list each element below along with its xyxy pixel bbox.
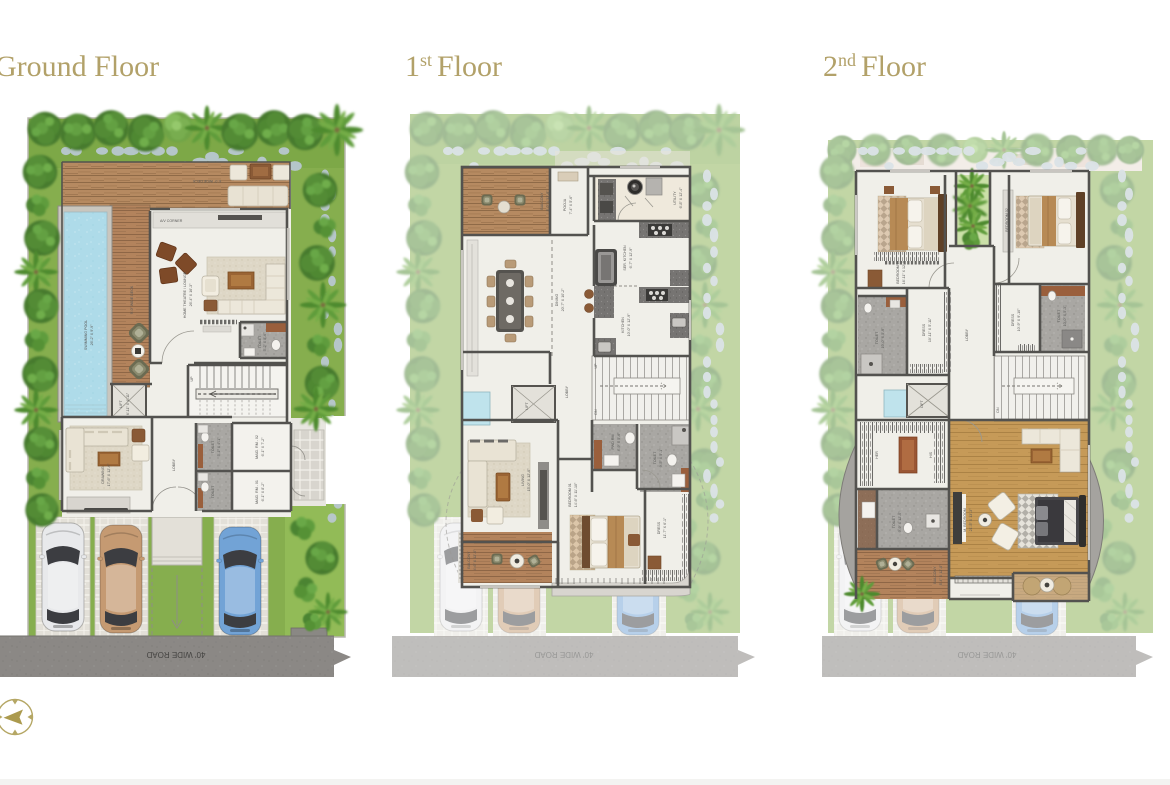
svg-text:BALCONY: BALCONY xyxy=(933,566,937,584)
svg-text:LOBBY: LOBBY xyxy=(565,385,569,398)
svg-text:26'-2" X 9'-9": 26'-2" X 9'-9" xyxy=(90,324,94,345)
svg-text:LIFT: LIFT xyxy=(119,400,123,408)
svg-text:10'-0" X 5'-3": 10'-0" X 5'-3" xyxy=(1063,305,1067,326)
svg-text:TOILET: TOILET xyxy=(211,440,215,453)
svg-text:DRESS: DRESS xyxy=(922,323,926,336)
svg-text:HIS: HIS xyxy=(929,451,933,458)
svg-text:UTILITY: UTILITY xyxy=(673,191,677,205)
svg-text:1stFloor: 1stFloor xyxy=(405,50,502,83)
svg-text:KITCHEN: KITCHEN xyxy=(621,317,625,333)
svg-text:SER. KITCHEN: SER. KITCHEN xyxy=(623,245,627,271)
svg-text:SWIMMING POOL: SWIMMING POOL xyxy=(84,320,88,350)
svg-text:10'-0" X 12'-9": 10'-0" X 12'-9" xyxy=(627,313,631,336)
svg-text:PWD RM: PWD RM xyxy=(611,435,615,450)
svg-text:15'-0" X 12'-0": 15'-0" X 12'-0" xyxy=(527,468,531,491)
svg-text:TOILET: TOILET xyxy=(653,451,657,464)
svg-text:Ground Floor: Ground Floor xyxy=(0,50,159,83)
svg-text:40' WIDE ROAD: 40' WIDE ROAD xyxy=(146,650,205,659)
svg-text:BALCONY: BALCONY xyxy=(540,192,544,210)
svg-text:LIFT: LIFT xyxy=(525,402,529,410)
svg-text:6'-0" WIDE DECK: 6'-0" WIDE DECK xyxy=(192,179,221,183)
svg-text:6'-1" X 7'-2": 6'-1" X 7'-2" xyxy=(261,437,265,456)
svg-text:40' WIDE ROAD: 40' WIDE ROAD xyxy=(957,650,1016,659)
svg-text:10'-11" X 5'-11": 10'-11" X 5'-11" xyxy=(928,317,932,342)
svg-text:HER: HER xyxy=(875,451,879,459)
svg-text:TOILET: TOILET xyxy=(875,331,879,344)
svg-text:A/V CORNER: A/V CORNER xyxy=(160,219,183,223)
svg-text:DN: DN xyxy=(996,407,1000,413)
svg-text:MAID. RM - 02: MAID. RM - 02 xyxy=(255,435,259,459)
svg-text:4'-9" X 5'-6": 4'-9" X 5'-6" xyxy=(617,432,621,451)
svg-text:9'-0" WIDE DECK: 9'-0" WIDE DECK xyxy=(130,285,134,314)
svg-text:DRESS: DRESS xyxy=(1011,313,1015,326)
svg-text:21'-5" X 13'-3": 21'-5" X 13'-3" xyxy=(969,508,973,531)
svg-text:BALCONY: BALCONY xyxy=(467,551,471,569)
svg-text:9'-9" X 12'-0": 9'-9" X 12'-0" xyxy=(898,511,902,532)
svg-text:TOILET: TOILET xyxy=(1057,309,1061,322)
svg-text:11'-7" X 6'-1": 11'-7" X 6'-1" xyxy=(663,517,667,538)
svg-text:5'-2" X 8'-6": 5'-2" X 8'-6" xyxy=(263,332,267,351)
svg-text:TOILET: TOILET xyxy=(211,485,215,498)
svg-text:DRAWING: DRAWING xyxy=(101,466,105,483)
svg-text:DN: DN xyxy=(594,409,598,415)
svg-text:14'-6" X 11'-10": 14'-6" X 11'-10" xyxy=(574,482,578,507)
svg-text:20'-7" X 10'-2": 20'-7" X 10'-2" xyxy=(561,288,565,311)
svg-text:UP: UP xyxy=(190,376,194,382)
svg-text:LOBBY: LOBBY xyxy=(172,458,176,471)
svg-text:6'-8" X 12'-4": 6'-8" X 12'-4" xyxy=(679,187,683,208)
svg-text:DRESS: DRESS xyxy=(657,521,661,534)
svg-text:TOILET: TOILET xyxy=(258,335,262,348)
svg-text:BEDROOM 03: BEDROOM 03 xyxy=(896,260,900,284)
svg-text:LIVING: LIVING xyxy=(521,474,525,486)
svg-text:26'-4" X 16'-3": 26'-4" X 16'-3" xyxy=(189,283,193,306)
svg-text:6'-1" X 8'-2": 6'-1" X 8'-2" xyxy=(261,482,265,501)
svg-text:DINING: DINING xyxy=(555,294,559,307)
svg-text:4'-6" X 12'-0": 4'-6" X 12'-0" xyxy=(473,549,477,570)
svg-text:LIFT: LIFT xyxy=(920,400,924,408)
svg-text:40' WIDE ROAD: 40' WIDE ROAD xyxy=(534,650,593,659)
svg-text:10'-0" X 5'-0": 10'-0" X 5'-0" xyxy=(881,327,885,348)
svg-text:10'-9" X 9'-10": 10'-9" X 9'-10" xyxy=(1017,308,1021,331)
svg-text:17'-6" X 12'-0": 17'-6" X 12'-0" xyxy=(107,463,111,486)
svg-text:7'-4" X 5'-6": 7'-4" X 5'-6" xyxy=(569,195,573,214)
svg-text:LOBBY: LOBBY xyxy=(965,328,969,341)
svg-text:BEDROOM 01: BEDROOM 01 xyxy=(568,483,572,507)
svg-text:2ndFloor: 2ndFloor xyxy=(823,50,926,83)
svg-text:HOME THEATRE / LOUNGE: HOME THEATRE / LOUNGE xyxy=(183,271,187,318)
svg-text:TOILET: TOILET xyxy=(892,515,896,528)
svg-text:16'-11" X 12'-0": 16'-11" X 12'-0" xyxy=(902,259,906,284)
svg-text:8'-4" X 12'-8": 8'-4" X 12'-8" xyxy=(939,564,943,585)
svg-text:POOJA: POOJA xyxy=(563,198,567,211)
svg-text:M. BEDROOM: M. BEDROOM xyxy=(963,508,967,532)
svg-text:UP: UP xyxy=(594,363,598,369)
svg-text:5'-1" X 4'-1": 5'-1" X 4'-1" xyxy=(217,437,221,456)
svg-text:6'-7" X 12'-9": 6'-7" X 12'-9" xyxy=(629,247,633,268)
svg-text:9'-5" X 5'-1": 9'-5" X 5'-1" xyxy=(659,448,663,467)
svg-text:6'-11" X 4'-11": 6'-11" X 4'-11" xyxy=(126,392,130,415)
svg-text:MAID. RM - 01: MAID. RM - 01 xyxy=(255,480,259,504)
